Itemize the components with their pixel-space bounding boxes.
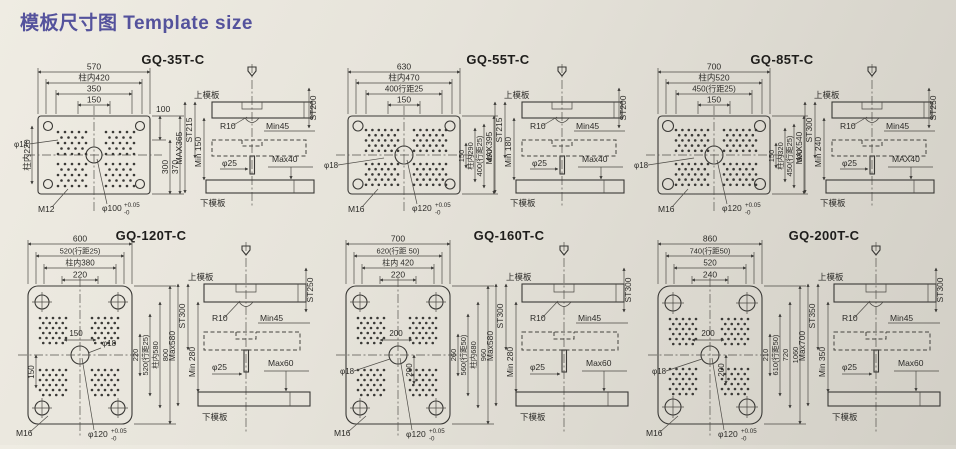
side-view: 上模板 ST300 R10 Min45 φ25 Max60 下模板 Max580	[485, 242, 633, 432]
movable-platen	[204, 332, 300, 350]
center-dia-label: φ120	[722, 203, 742, 213]
mounting-hole-dots	[91, 369, 120, 397]
diagram-gq-85t-c: GQ-85T-C 700 柱内520 450(行距25) 150	[630, 48, 940, 225]
opening-stroke-label: ST300	[177, 303, 187, 328]
diagram-gq-120t-c: GQ-120T-C 600 520(行距25) 柱内380 220	[6, 224, 316, 449]
min45-label: Min45	[260, 313, 283, 323]
daylight-dim-label: Max580	[167, 331, 177, 362]
center-dia-label: φ100	[102, 203, 122, 213]
pin-dia-label: φ25	[212, 362, 227, 372]
top-dimensions: 860 740(行距50) 520 240	[658, 234, 762, 285]
model-title: GQ-35T-C	[141, 52, 204, 67]
front-view: 860 740(行距50) 520 240	[646, 234, 806, 443]
stroke-dim-label: ST250	[305, 277, 315, 302]
max-stroke-label: Max40	[272, 154, 298, 164]
stroke-dim-label: ST300	[935, 277, 945, 302]
screw-label: M16	[16, 428, 33, 438]
dim-label: 720	[781, 349, 790, 362]
min-mold-label: Min 280	[505, 347, 515, 378]
upper-platen-label: 上模板	[188, 272, 214, 282]
pin-dia-label: φ25	[842, 362, 857, 372]
opening-stroke-label: ST300	[495, 303, 505, 328]
min-mold-label: Min 150	[193, 137, 203, 168]
mounting-hole-dots	[57, 131, 88, 156]
dim-label: 400行距25	[385, 84, 424, 94]
diagram-gq-35t-c: GQ-35T-C 570 柱内420 350 150	[10, 48, 320, 225]
dim-label: 210	[761, 349, 770, 362]
model-title: GQ-200T-C	[789, 228, 860, 243]
min-mold-label: Min 350	[817, 347, 827, 378]
daylight-dim-label: Max580	[485, 331, 495, 362]
model-title: GQ-55T-C	[466, 52, 529, 67]
max-stroke-label: Max40	[582, 154, 608, 164]
tie-bar-hole	[353, 179, 363, 189]
min-mold-label: Min 180	[503, 137, 513, 168]
hole-dia-label: φ18	[340, 367, 355, 376]
front-view: 700 柱内520 450(行距25) 150	[634, 62, 808, 217]
dim-label: 200	[701, 329, 715, 338]
upper-platen-label: 上模板	[814, 90, 840, 100]
dim-label: 560(行距50)	[458, 334, 468, 375]
side-view: 上模板 ST250 R10 Min45 φ25 Max60 下模板 Max580	[167, 242, 315, 432]
movable-platen	[522, 332, 618, 350]
hole-dia-label: φ18	[102, 339, 117, 348]
tolerance-upper: +0.05	[745, 202, 761, 209]
min45-label: Min45	[886, 121, 909, 131]
pin-dia-label: φ25	[532, 158, 547, 168]
min-mold-label: Min 240	[813, 137, 823, 168]
platen-outline	[646, 106, 782, 212]
mounting-hole-dots	[675, 129, 710, 152]
min45-label: Min45	[576, 121, 599, 131]
r10-label: R10	[842, 313, 858, 323]
front-view: 700 620(行距 50) 柱内 420 220	[334, 234, 494, 443]
gq-35t-c-drawing: GQ-35T-C 570 柱内420 350 150	[10, 48, 320, 220]
dim-label: 740(行距50)	[690, 246, 731, 256]
dim-label: 200	[389, 329, 403, 338]
dim-label: 柱内420	[78, 73, 109, 83]
center-dia-label: φ120	[406, 429, 426, 439]
max-stroke-label: Max60	[586, 358, 612, 368]
pin-dia-label: φ25	[222, 158, 237, 168]
page-title: 模板尺寸图 Template size	[20, 8, 253, 35]
tolerance-lower: -0	[435, 210, 441, 217]
daylight-dim-label: MAX540	[794, 131, 804, 164]
dim-label: 柱内290	[465, 142, 475, 170]
mounting-hole-dots	[669, 368, 698, 396]
lower-platen-bar	[198, 392, 310, 406]
dim-label: 柱内320	[775, 142, 785, 170]
dim-label: 520(行距25)	[140, 334, 150, 375]
model-title: GQ-160T-C	[474, 228, 545, 243]
tolerance-upper: +0.05	[124, 202, 140, 209]
side-view: 上模板 ST250 R10 Min45 φ25 MAX40 下模板 MAX540	[794, 64, 938, 208]
front-view: 570 柱内420 350 150	[14, 62, 184, 217]
upper-platen-label: 上模板	[194, 90, 220, 100]
screw-label: M16	[334, 428, 351, 438]
min-mold-label: Min 280	[187, 347, 197, 378]
min45-label: Min45	[266, 121, 289, 131]
tolerance-lower: -0	[741, 436, 747, 443]
lower-platen-label: 下模板	[202, 412, 228, 422]
dim-label: 150	[69, 329, 83, 338]
lower-platen-label: 下模板	[520, 412, 546, 422]
dim-label: 200	[405, 363, 414, 377]
gq-160t-c-drawing: GQ-160T-C 700 620(行距 50) 柱内 420 220	[324, 224, 634, 444]
side-view: 上模板 ST200 R10 Min45 φ25 Max40 下模板 MAX395	[484, 64, 628, 208]
mounting-hole-dots	[413, 129, 448, 152]
mounting-hole-dots	[669, 318, 698, 346]
r10-label: R10	[840, 121, 856, 131]
dim-label: 400(行距25)	[474, 135, 484, 176]
mounting-hole-dots	[409, 317, 438, 345]
mounting-hole-dots	[39, 369, 68, 397]
tolerance-upper: +0.05	[429, 428, 445, 435]
dim-label: 150	[27, 365, 36, 379]
screw-label: M16	[348, 204, 365, 214]
tie-bar-hole	[663, 179, 674, 190]
tie-bar-hole	[663, 121, 674, 132]
dim-label: 700	[391, 234, 405, 244]
dim-label: 柱内520	[698, 73, 729, 83]
mounting-hole-dots	[721, 318, 750, 346]
dim-label: 450(行距25)	[784, 135, 794, 176]
dim-label: 柱内470	[388, 73, 419, 83]
fixed-platen	[834, 284, 936, 302]
dim-label: 150	[87, 95, 101, 105]
dim-label: 570	[87, 62, 101, 72]
lower-platen-bar	[826, 180, 934, 193]
tolerance-upper: +0.05	[741, 428, 757, 435]
pin-dia-label: φ25	[842, 158, 857, 168]
center-dia-label: φ120	[718, 429, 738, 439]
max-stroke-label: Max60	[898, 358, 924, 368]
platen-outline	[336, 106, 472, 212]
dim-label: 150	[767, 150, 776, 163]
opening-stroke-label: ST350	[807, 303, 817, 328]
dim-label: 柱内580	[150, 341, 160, 369]
r10-label: R10	[530, 121, 546, 131]
dim-label: 860	[703, 234, 717, 244]
dim-label: 700	[707, 62, 721, 72]
tolerance-lower: -0	[745, 210, 751, 217]
screw-label: M16	[646, 428, 663, 438]
r10-label: R10	[530, 313, 546, 323]
bottom-labels: M12 φ100 +0.05 -0	[38, 159, 140, 217]
dim-label: 100	[156, 104, 170, 114]
stroke-dim-label: ST200	[308, 95, 318, 120]
top-dimensions: 700 620(行距 50) 柱内 420 220	[346, 234, 450, 285]
tie-bar-hole	[136, 122, 145, 131]
daylight-dim-label: MAX365	[174, 131, 184, 164]
mounting-hole-dots	[365, 129, 400, 152]
fixed-platen	[204, 284, 306, 302]
lower-platen-bar	[206, 180, 314, 193]
tolerance-upper: +0.05	[435, 202, 451, 209]
daylight-dim-label: Max700	[797, 331, 807, 362]
model-title: GQ-120T-C	[116, 228, 187, 243]
dim-label: 350	[87, 84, 101, 94]
dim-label: 260	[449, 349, 458, 362]
upper-platen-label: 上模板	[504, 90, 530, 100]
side-view: 上模板 ST300 R10 Min45 φ25 Max60 下模板 Max700	[797, 242, 945, 432]
diagram-gq-200t-c: GQ-200T-C 860 740(行距50) 520 240	[636, 224, 946, 449]
dim-label: 300	[160, 160, 170, 174]
front-view: 630 柱内470 400行距25 150	[324, 62, 498, 217]
lower-platen-bar	[828, 392, 940, 406]
dim-label: 柱内380	[65, 258, 95, 268]
gq-120t-c-drawing: GQ-120T-C 600 520(行距25) 柱内380 220	[6, 224, 316, 444]
min45-label: Min45	[578, 313, 601, 323]
dim-label: 610(行距50)	[770, 334, 780, 375]
lower-platen-label: 下模板	[510, 198, 536, 208]
mounting-hole-dots	[105, 163, 136, 188]
side-view: 上模板 ST200 R10 Min45 φ25 Max40 下模板 MAX365	[174, 64, 318, 208]
gq-55t-c-drawing: GQ-55T-C 630 柱内470 400行距25 150	[320, 48, 630, 220]
dim-label: 220	[131, 349, 140, 362]
movable-platen	[834, 332, 930, 350]
screw-label: M12	[38, 204, 55, 214]
max-stroke-label: Max60	[268, 358, 294, 368]
tolerance-upper: +0.05	[111, 428, 127, 435]
mounting-hole-dots	[675, 163, 710, 186]
diagram-gq-160t-c: GQ-160T-C 700 620(行距 50) 柱内 420 220	[324, 224, 634, 449]
left-dimension: 柱内220 φ14	[14, 126, 58, 184]
mounting-hole-dots	[39, 317, 68, 345]
tie-bar-hole	[136, 180, 145, 189]
diagram-gq-55t-c: GQ-55T-C 630 柱内470 400行距25 150	[320, 48, 630, 225]
mounting-hole-dots	[723, 129, 758, 152]
center-dia-label: φ120	[412, 203, 432, 213]
upper-platen-label: 上模板	[506, 272, 532, 282]
r10-label: R10	[212, 313, 228, 323]
lower-platen-bar	[516, 180, 624, 193]
mounting-hole-dots	[357, 369, 386, 397]
pin-dia-label: φ25	[530, 362, 545, 372]
hole-dia-label: φ18	[324, 161, 339, 170]
stroke-dim-label: ST200	[618, 95, 628, 120]
dim-label: 620(行距 50)	[377, 246, 420, 256]
upper-platen-label: 上模板	[818, 272, 844, 282]
lower-platen-label: 下模板	[200, 198, 226, 208]
lower-platen-bar	[516, 392, 628, 406]
r10-label: R10	[220, 121, 236, 131]
lower-platen-label: 下模板	[820, 198, 846, 208]
gq-200t-c-drawing: GQ-200T-C 860 740(行距50) 520 240	[636, 224, 946, 444]
dim-label: 520(行距25)	[60, 246, 101, 256]
tolerance-lower: -0	[124, 210, 130, 217]
mounting-hole-dots	[365, 163, 400, 186]
dim-label: 600	[73, 234, 87, 244]
dim-label: 150	[397, 95, 411, 105]
lower-platen-label: 下模板	[832, 412, 858, 422]
stroke-dim-label: ST250	[928, 95, 938, 120]
dim-label: 150	[457, 150, 466, 163]
tie-bar-hole	[44, 122, 53, 131]
gq-85t-c-drawing: GQ-85T-C 700 柱内520 450(行距25) 150	[630, 48, 940, 220]
hole-dia-label: φ18	[634, 161, 649, 170]
tolerance-lower: -0	[111, 436, 117, 443]
catalog-page: 模板尺寸图 Template size GQ-35T-C 570 柱内420 3…	[0, 0, 956, 445]
min45-label: Min45	[890, 313, 913, 323]
max-stroke-label: MAX40	[892, 154, 920, 164]
front-view: 600 520(行距25) 柱内380 220	[16, 234, 176, 443]
mounting-hole-dots	[57, 163, 88, 188]
mounting-hole-dots	[723, 163, 758, 186]
mounting-hole-dots	[105, 131, 136, 156]
screw-label: M16	[658, 204, 675, 214]
tie-bar-hole	[353, 121, 363, 131]
mounting-hole-dots	[413, 163, 448, 186]
dim-label: 柱内680	[468, 341, 478, 369]
center-dia-label: φ120	[88, 429, 108, 439]
hole-dia-label: φ14	[14, 140, 29, 149]
daylight-dim-label: MAX395	[484, 131, 494, 164]
dim-label: 200	[717, 363, 726, 377]
dim-label: 630	[397, 62, 411, 72]
dim-label: 150	[707, 95, 721, 105]
dim-label: 柱内 420	[382, 258, 414, 268]
tie-bar-hole	[44, 180, 53, 189]
stroke-dim-label: ST300	[623, 277, 633, 302]
dim-label: 520	[703, 259, 717, 268]
hole-dia-label: φ18	[652, 367, 667, 376]
tolerance-lower: -0	[429, 436, 435, 443]
fixed-platen	[522, 284, 624, 302]
platen-outline	[26, 106, 162, 212]
model-title: GQ-85T-C	[750, 52, 813, 67]
dim-label: 450(行距25)	[692, 84, 736, 94]
